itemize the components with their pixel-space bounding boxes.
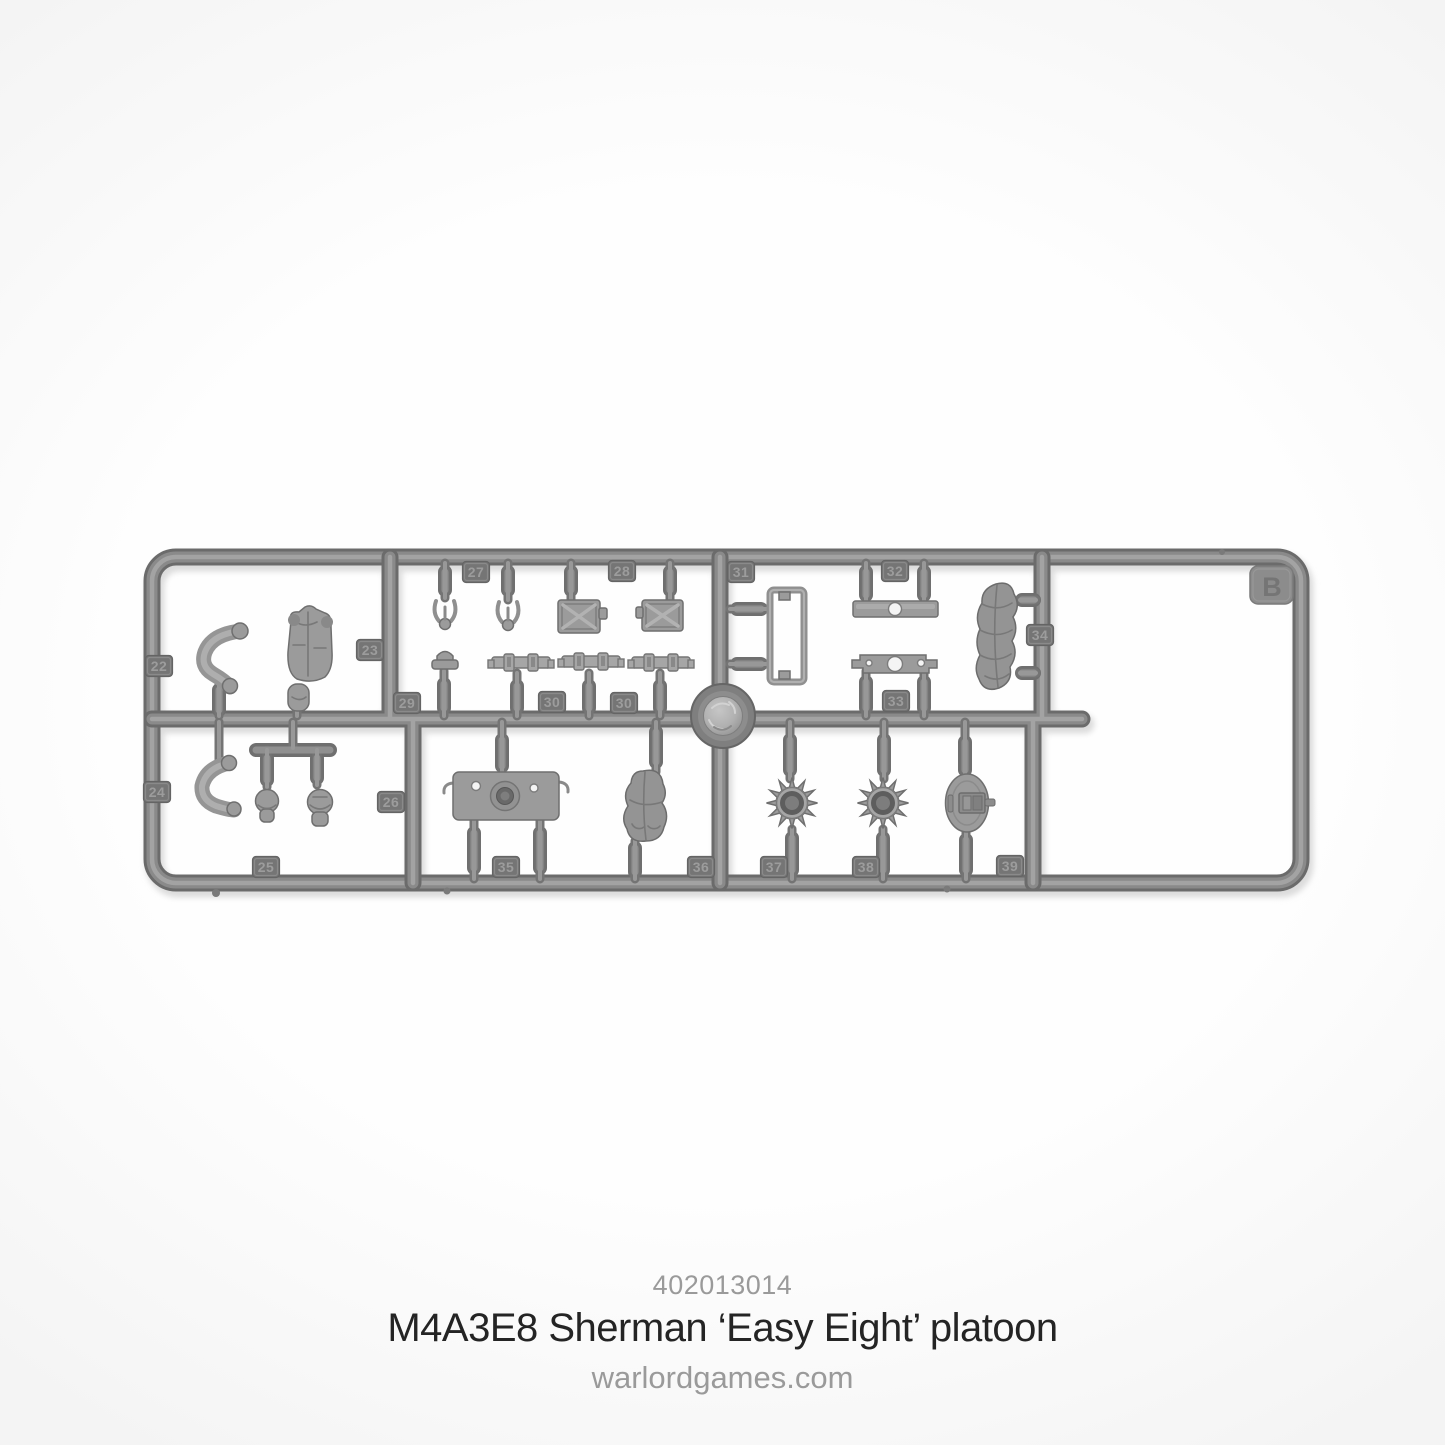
svg-text:25: 25 (258, 859, 275, 875)
svg-text:38: 38 (858, 859, 875, 875)
product-title: M4A3E8 Sherman ‘Easy Eight’ platoon (0, 1306, 1445, 1351)
part-number-tag-38: 38 (853, 857, 880, 878)
svg-text:30: 30 (616, 695, 633, 711)
part-number-tag-33: 33 (883, 691, 910, 712)
part-stowage-roll (976, 583, 1017, 689)
part-head (308, 790, 333, 827)
part-ammo-box (636, 600, 683, 631)
svg-text:35: 35 (498, 859, 515, 875)
sprue-photo-svg: 22232425262728293030313233343536373839 B (0, 0, 1445, 1445)
part-number-tag-25: 25 (253, 857, 280, 878)
svg-text:28: 28 (614, 563, 631, 579)
part-tool-clamp (488, 654, 554, 671)
svg-text:32: 32 (887, 563, 904, 579)
part-number-tag-27: 27 (463, 562, 490, 583)
svg-text:36: 36 (693, 859, 710, 875)
part-number-tag-23: 23 (357, 640, 384, 661)
part-number-tag-24: 24 (144, 782, 171, 803)
svg-text:29: 29 (399, 695, 416, 711)
part-number-tag-37: 37 (761, 857, 788, 878)
svg-text:34: 34 (1032, 627, 1049, 643)
part-number-tag-29: 29 (394, 693, 421, 714)
website-url: warlordgames.com (0, 1360, 1445, 1396)
part-torso (288, 606, 333, 681)
part-arm-bent-lower (202, 756, 241, 817)
svg-text:27: 27 (468, 564, 485, 580)
part-pouch (288, 684, 309, 711)
part-number-tag-28: 28 (609, 561, 636, 582)
part-number-tag-31: 31 (728, 562, 755, 583)
part-number-tag-30: 30 (539, 692, 566, 713)
svg-text:31: 31 (733, 564, 750, 580)
part-number-tag-36: 36 (688, 857, 715, 878)
part-number-tag-30: 30 (611, 693, 638, 714)
svg-text:24: 24 (149, 784, 166, 800)
part-number-tag-35: 35 (493, 857, 520, 878)
part-tool-clamp (628, 654, 694, 671)
part-periscope-guard (770, 590, 804, 682)
part-number-tag-22: 22 (146, 656, 173, 677)
part-drive-sprocket (858, 778, 909, 829)
part-bedroll (624, 770, 667, 841)
svg-text:33: 33 (888, 693, 905, 709)
svg-text:30: 30 (544, 694, 561, 710)
part-lifting-hook (498, 602, 519, 631)
part-head (256, 790, 279, 823)
part-drive-sprocket (767, 778, 818, 829)
svg-text:39: 39 (1002, 858, 1019, 874)
part-bracket (853, 601, 938, 617)
part-hull-plate (444, 772, 568, 820)
part-periscope (432, 652, 458, 670)
part-bracket-drilled (852, 655, 937, 673)
part-tool-clamp (558, 653, 624, 670)
svg-text:22: 22 (151, 658, 168, 674)
part-number-tag-26: 26 (378, 792, 405, 813)
svg-text:23: 23 (362, 642, 379, 658)
part-hatch (946, 774, 996, 832)
sprue-letter: B (1262, 572, 1282, 602)
svg-text:26: 26 (383, 794, 400, 810)
part-ammo-box (558, 600, 607, 633)
part-arm-bent-upper (204, 623, 248, 694)
part-number-tag-39: 39 (997, 856, 1024, 877)
product-sku: 402013014 (0, 1270, 1445, 1301)
sprue-hub (691, 684, 755, 748)
part-number-tag-34: 34 (1027, 625, 1054, 646)
product-photo: 22232425262728293030313233343536373839 B… (0, 0, 1445, 1445)
part-lifting-hook (435, 601, 456, 630)
svg-text:37: 37 (766, 859, 783, 875)
part-number-tag-32: 32 (882, 561, 909, 582)
sprue-letter-tag: B (1250, 566, 1293, 604)
